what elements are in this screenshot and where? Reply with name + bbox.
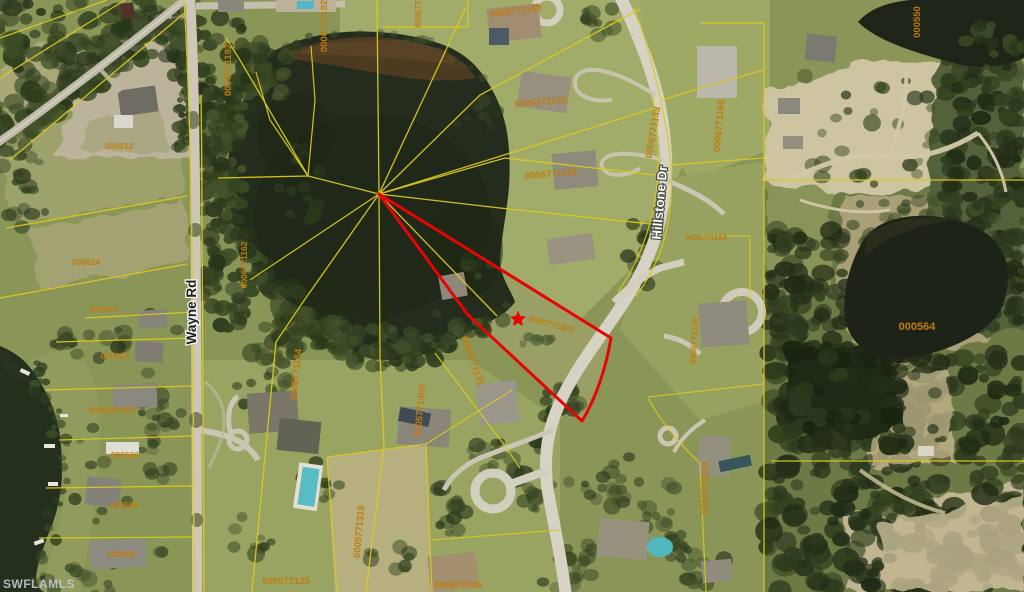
svg-text:000550: 000550	[912, 6, 923, 38]
svg-text:0006771315: 0006771315	[699, 461, 712, 515]
svg-text:000606: 000606	[107, 549, 136, 559]
svg-text:0006771192: 0006771192	[223, 44, 234, 96]
svg-text:000614: 000614	[72, 257, 101, 267]
svg-text:00067711: 00067711	[414, 0, 423, 28]
svg-text:000564: 000564	[899, 321, 937, 333]
svg-text:SWFLAMLS: SWFLAMLS	[3, 577, 75, 591]
svg-text:000612: 000612	[105, 141, 134, 151]
svg-text:000566: 000566	[111, 450, 140, 460]
svg-text:000577135: 000577135	[262, 576, 310, 587]
svg-text:0006771162: 0006771162	[239, 241, 249, 288]
svg-text:000621: 000621	[90, 304, 119, 314]
svg-text:0000267000: 0000267000	[88, 405, 136, 415]
svg-text:000624: 000624	[101, 351, 130, 361]
svg-text:0006771134: 0006771134	[685, 233, 727, 242]
svg-text:Wayne Rd: Wayne Rd	[184, 280, 199, 345]
svg-text:0006771192: 0006771192	[319, 0, 330, 52]
svg-text:000568: 000568	[110, 500, 139, 510]
svg-text:000677045: 000677045	[434, 580, 482, 591]
